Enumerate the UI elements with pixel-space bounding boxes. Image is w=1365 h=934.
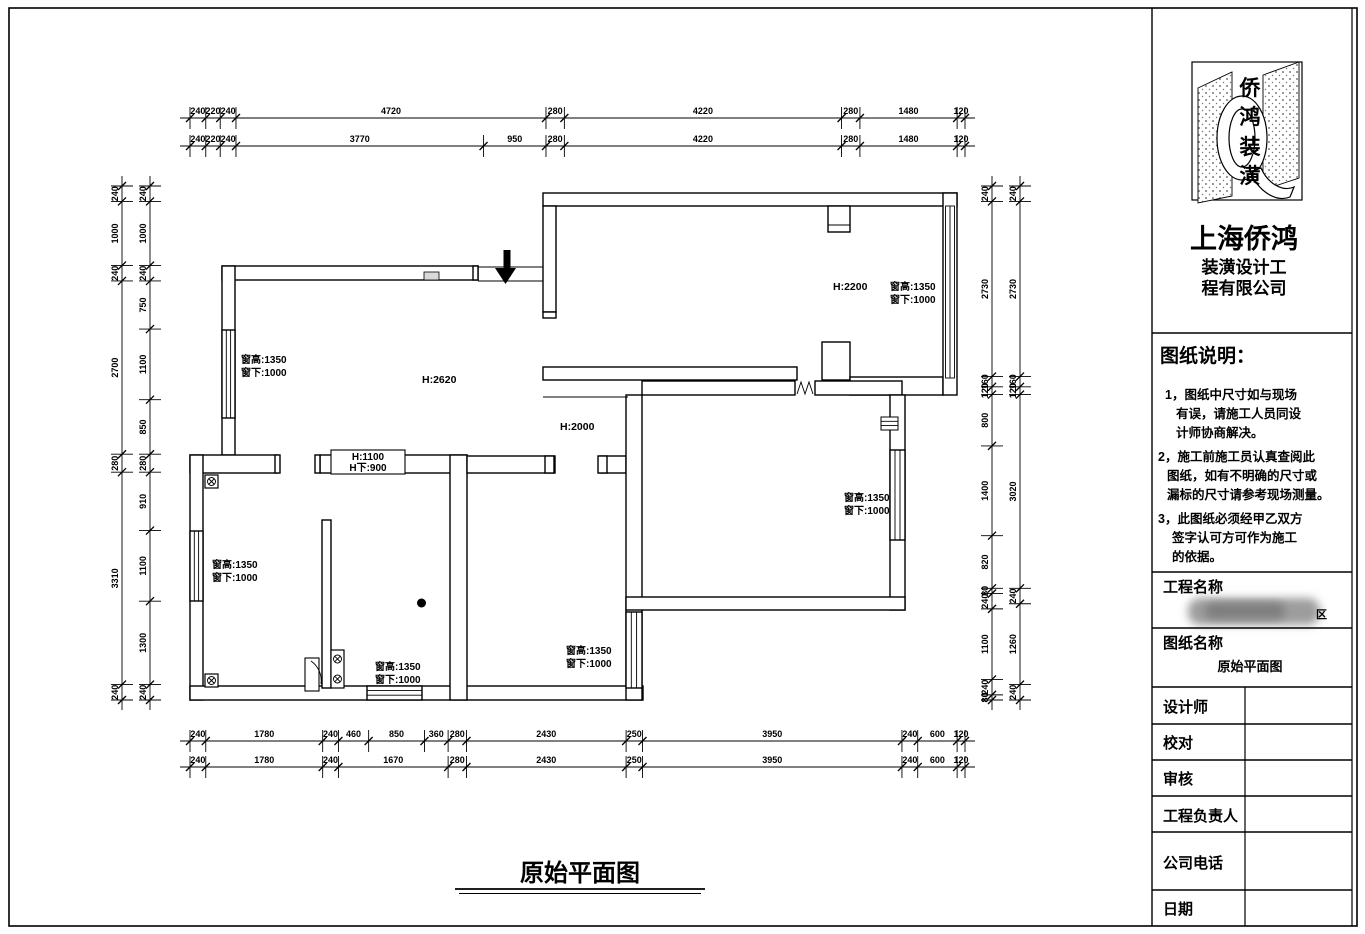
svg-text:2730: 2730	[980, 279, 990, 299]
row-label-phone: 公司电话	[1163, 854, 1223, 872]
svg-text:潢: 潢	[1240, 165, 1261, 188]
svg-text:950: 950	[507, 134, 522, 144]
svg-text:800: 800	[980, 413, 990, 428]
svg-text:120: 120	[954, 729, 969, 739]
note-line: 2，施工前施工员认真查阅此	[1158, 449, 1315, 464]
svg-text:850: 850	[389, 729, 404, 739]
svg-text:120: 120	[954, 134, 969, 144]
corner-marker-top	[205, 475, 218, 488]
svg-text:窗高:1350: 窗高:1350	[566, 644, 612, 657]
svg-text:1100: 1100	[980, 634, 990, 654]
svg-text:1100: 1100	[138, 355, 148, 375]
svg-text:1000: 1000	[138, 223, 148, 243]
note-line: 3，此图纸必须经甲乙双方	[1158, 511, 1302, 526]
svg-text:1780: 1780	[254, 729, 274, 739]
svg-text:600: 600	[930, 729, 945, 739]
svg-text:240: 240	[902, 729, 917, 739]
svg-text:1480: 1480	[899, 106, 919, 116]
svg-text:区: 区	[1316, 608, 1327, 621]
window-room-right	[890, 450, 905, 540]
row-label-manager: 工程负责人	[1163, 807, 1239, 825]
svg-text:820: 820	[980, 555, 990, 570]
svg-text:1300: 1300	[138, 633, 148, 653]
svg-text:窗高:1350: 窗高:1350	[375, 660, 421, 673]
note-line: 计师协商解决。	[1176, 425, 1264, 440]
window-left-upper	[222, 330, 235, 418]
svg-text:窗高:1350: 窗高:1350	[844, 491, 890, 504]
svg-text:4720: 4720	[381, 106, 401, 116]
svg-text:窗下:1000: 窗下:1000	[212, 571, 258, 584]
vent-symbol	[881, 417, 898, 430]
svg-text:240: 240	[221, 134, 236, 144]
note-line: 的依据。	[1172, 549, 1222, 564]
svg-text:侨: 侨	[1239, 76, 1262, 100]
svg-text:装: 装	[1240, 136, 1261, 159]
svg-text:240: 240	[138, 685, 148, 700]
door-swing-icon	[305, 658, 321, 691]
svg-text:1260: 1260	[1008, 634, 1018, 654]
project-name-redacted: 区	[1188, 598, 1327, 625]
svg-text:3950: 3950	[762, 729, 782, 739]
svg-text:280: 280	[548, 106, 563, 116]
svg-text:窗高:1350: 窗高:1350	[212, 558, 258, 571]
svg-text:240: 240	[190, 106, 205, 116]
svg-text:280: 280	[138, 456, 148, 471]
svg-text:240: 240	[980, 594, 990, 609]
corner-marker-bottom	[205, 674, 218, 687]
ceiling-dot	[417, 599, 426, 608]
company-logo: 侨 鸿 装 潢	[1192, 62, 1302, 203]
notes-title: 图纸说明：	[1160, 344, 1255, 367]
svg-text:窗下:1000: 窗下:1000	[566, 657, 612, 670]
svg-text:240: 240	[190, 729, 205, 739]
svg-text:H:1100: H:1100	[352, 452, 385, 463]
svg-text:2700: 2700	[110, 358, 120, 378]
svg-text:850: 850	[138, 419, 148, 434]
company-name: 上海侨鸿	[1190, 224, 1298, 254]
drawing-name-label: 图纸名称	[1163, 634, 1223, 652]
company-sub1: 装潢设计工	[1201, 257, 1287, 277]
label-sunroom-height: H:2200	[833, 281, 868, 293]
svg-text:240: 240	[138, 266, 148, 281]
svg-text:460: 460	[346, 729, 361, 739]
svg-text:窗下:1000: 窗下:1000	[375, 673, 421, 686]
svg-text:910: 910	[138, 494, 148, 509]
svg-text:1400: 1400	[980, 481, 990, 501]
svg-text:3310: 3310	[110, 568, 120, 588]
svg-text:280: 280	[548, 134, 563, 144]
drawing-name-value: 原始平面图	[1217, 659, 1282, 674]
svg-text:240: 240	[1008, 589, 1018, 604]
svg-text:250: 250	[627, 755, 642, 765]
svg-text:1670: 1670	[383, 755, 403, 765]
svg-text:240: 240	[323, 729, 338, 739]
svg-text:240: 240	[110, 186, 120, 201]
svg-text:2430: 2430	[536, 755, 556, 765]
note-line: 漏标的尺寸请参考现场测量。	[1167, 487, 1330, 502]
svg-text:H下:900: H下:900	[349, 462, 387, 474]
svg-text:窗高:1350: 窗高:1350	[241, 353, 287, 366]
svg-text:280: 280	[450, 729, 465, 739]
svg-text:600: 600	[930, 755, 945, 765]
svg-text:220: 220	[205, 134, 220, 144]
label-lowwall: H:1100 H下:900	[331, 450, 405, 474]
note-line: 图纸，如有不明确的尺寸或	[1167, 468, 1318, 483]
svg-text:240: 240	[190, 134, 205, 144]
svg-text:2730: 2730	[1008, 279, 1018, 299]
company-sub2: 程有限公司	[1202, 278, 1287, 298]
drawing-title-text: 原始平面图	[520, 860, 640, 887]
row-label-review: 审核	[1163, 770, 1193, 788]
svg-text:1480: 1480	[899, 134, 919, 144]
svg-text:240: 240	[110, 266, 120, 281]
niche-marker	[424, 272, 439, 280]
window-left-lower	[190, 531, 203, 601]
svg-text:1100: 1100	[138, 556, 148, 576]
svg-text:240: 240	[138, 186, 148, 201]
svg-text:120: 120	[980, 383, 990, 398]
logo-right-shape	[1263, 62, 1299, 190]
drawing-sheet: H:2620 H:2200 H:2000 H:1100 H下:900 窗高:13…	[0, 0, 1365, 934]
svg-text:1780: 1780	[254, 755, 274, 765]
svg-text:240: 240	[190, 755, 205, 765]
svg-text:80: 80	[980, 692, 990, 702]
window-mid-right	[626, 612, 642, 688]
svg-text:4220: 4220	[693, 106, 713, 116]
svg-text:240: 240	[1008, 186, 1018, 201]
label-living-height: H:2620	[422, 374, 457, 386]
note-line: 签字认可方可作为施工	[1171, 530, 1298, 545]
note-line: 有误，请施工人员同设	[1176, 406, 1302, 421]
svg-text:250: 250	[627, 729, 642, 739]
svg-text:280: 280	[843, 134, 858, 144]
svg-text:240: 240	[1008, 685, 1018, 700]
svg-text:120: 120	[954, 106, 969, 116]
svg-text:1000: 1000	[110, 223, 120, 243]
shaft-symbol	[331, 650, 344, 688]
svg-text:240: 240	[902, 755, 917, 765]
project-name-label: 工程名称	[1163, 578, 1223, 596]
svg-text:4220: 4220	[693, 134, 713, 144]
svg-text:280: 280	[843, 106, 858, 116]
svg-text:120: 120	[954, 755, 969, 765]
svg-text:240: 240	[221, 106, 236, 116]
row-label-date: 日期	[1163, 900, 1193, 918]
window-bottom	[367, 686, 422, 700]
svg-text:280: 280	[110, 456, 120, 471]
note-line: 1，图纸中尺寸如与现场	[1165, 387, 1297, 402]
svg-text:280: 280	[450, 755, 465, 765]
svg-text:窗下:1000: 窗下:1000	[844, 504, 890, 517]
svg-text:窗高:1350: 窗高:1350	[890, 280, 936, 293]
label-hall-height: H:2000	[560, 421, 595, 433]
svg-text:鸿: 鸿	[1240, 105, 1261, 129]
svg-text:240: 240	[980, 186, 990, 201]
svg-text:3020: 3020	[1008, 481, 1018, 501]
row-label-proofread: 校对	[1163, 734, 1193, 752]
svg-text:3770: 3770	[350, 134, 370, 144]
svg-text:220: 220	[205, 106, 220, 116]
svg-text:360: 360	[429, 729, 444, 739]
svg-text:3950: 3950	[762, 755, 782, 765]
row-label-designer: 设计师	[1163, 698, 1208, 716]
svg-text:750: 750	[138, 298, 148, 313]
svg-text:窗下:1000: 窗下:1000	[241, 366, 287, 379]
svg-text:2430: 2430	[536, 729, 556, 739]
svg-text:240: 240	[323, 755, 338, 765]
svg-text:120: 120	[1008, 383, 1018, 398]
svg-text:窗下:1000: 窗下:1000	[890, 293, 936, 306]
svg-text:240: 240	[110, 685, 120, 700]
window-sunroom-glazing	[946, 206, 955, 378]
